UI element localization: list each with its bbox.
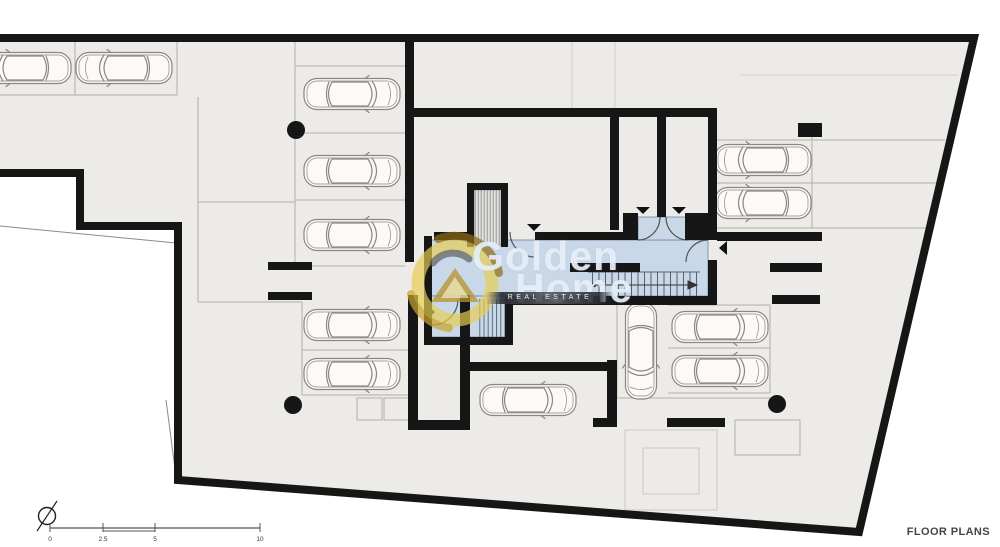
floor-plan-page: 02.5510 Golden Home Real Estate FLOOR PL… <box>0 0 1000 547</box>
car <box>304 217 400 254</box>
car <box>304 307 400 344</box>
car <box>76 50 172 87</box>
car <box>672 353 768 390</box>
car <box>0 50 71 87</box>
ramp-hatch <box>474 190 501 245</box>
car <box>480 382 576 419</box>
north-symbol-slash <box>37 501 57 531</box>
structural-column <box>284 396 302 414</box>
scale-tick-label: 10 <box>256 536 264 543</box>
floor-plan-drawing: 02.5510 <box>0 0 1000 547</box>
car <box>304 356 400 393</box>
car <box>304 153 400 190</box>
scale-tick-label: 2.5 <box>98 536 107 543</box>
car <box>304 76 400 113</box>
car <box>715 142 811 179</box>
car <box>672 309 768 346</box>
structural-column <box>768 395 786 413</box>
scale-tick-label: 0 <box>48 536 52 543</box>
scale-bar: 02.5510 <box>37 501 264 543</box>
scale-tick-label: 5 <box>153 536 157 543</box>
structural-column <box>287 121 305 139</box>
floor-plans-label: FLOOR PLANS <box>907 526 990 538</box>
car <box>715 185 811 222</box>
car <box>623 303 660 399</box>
